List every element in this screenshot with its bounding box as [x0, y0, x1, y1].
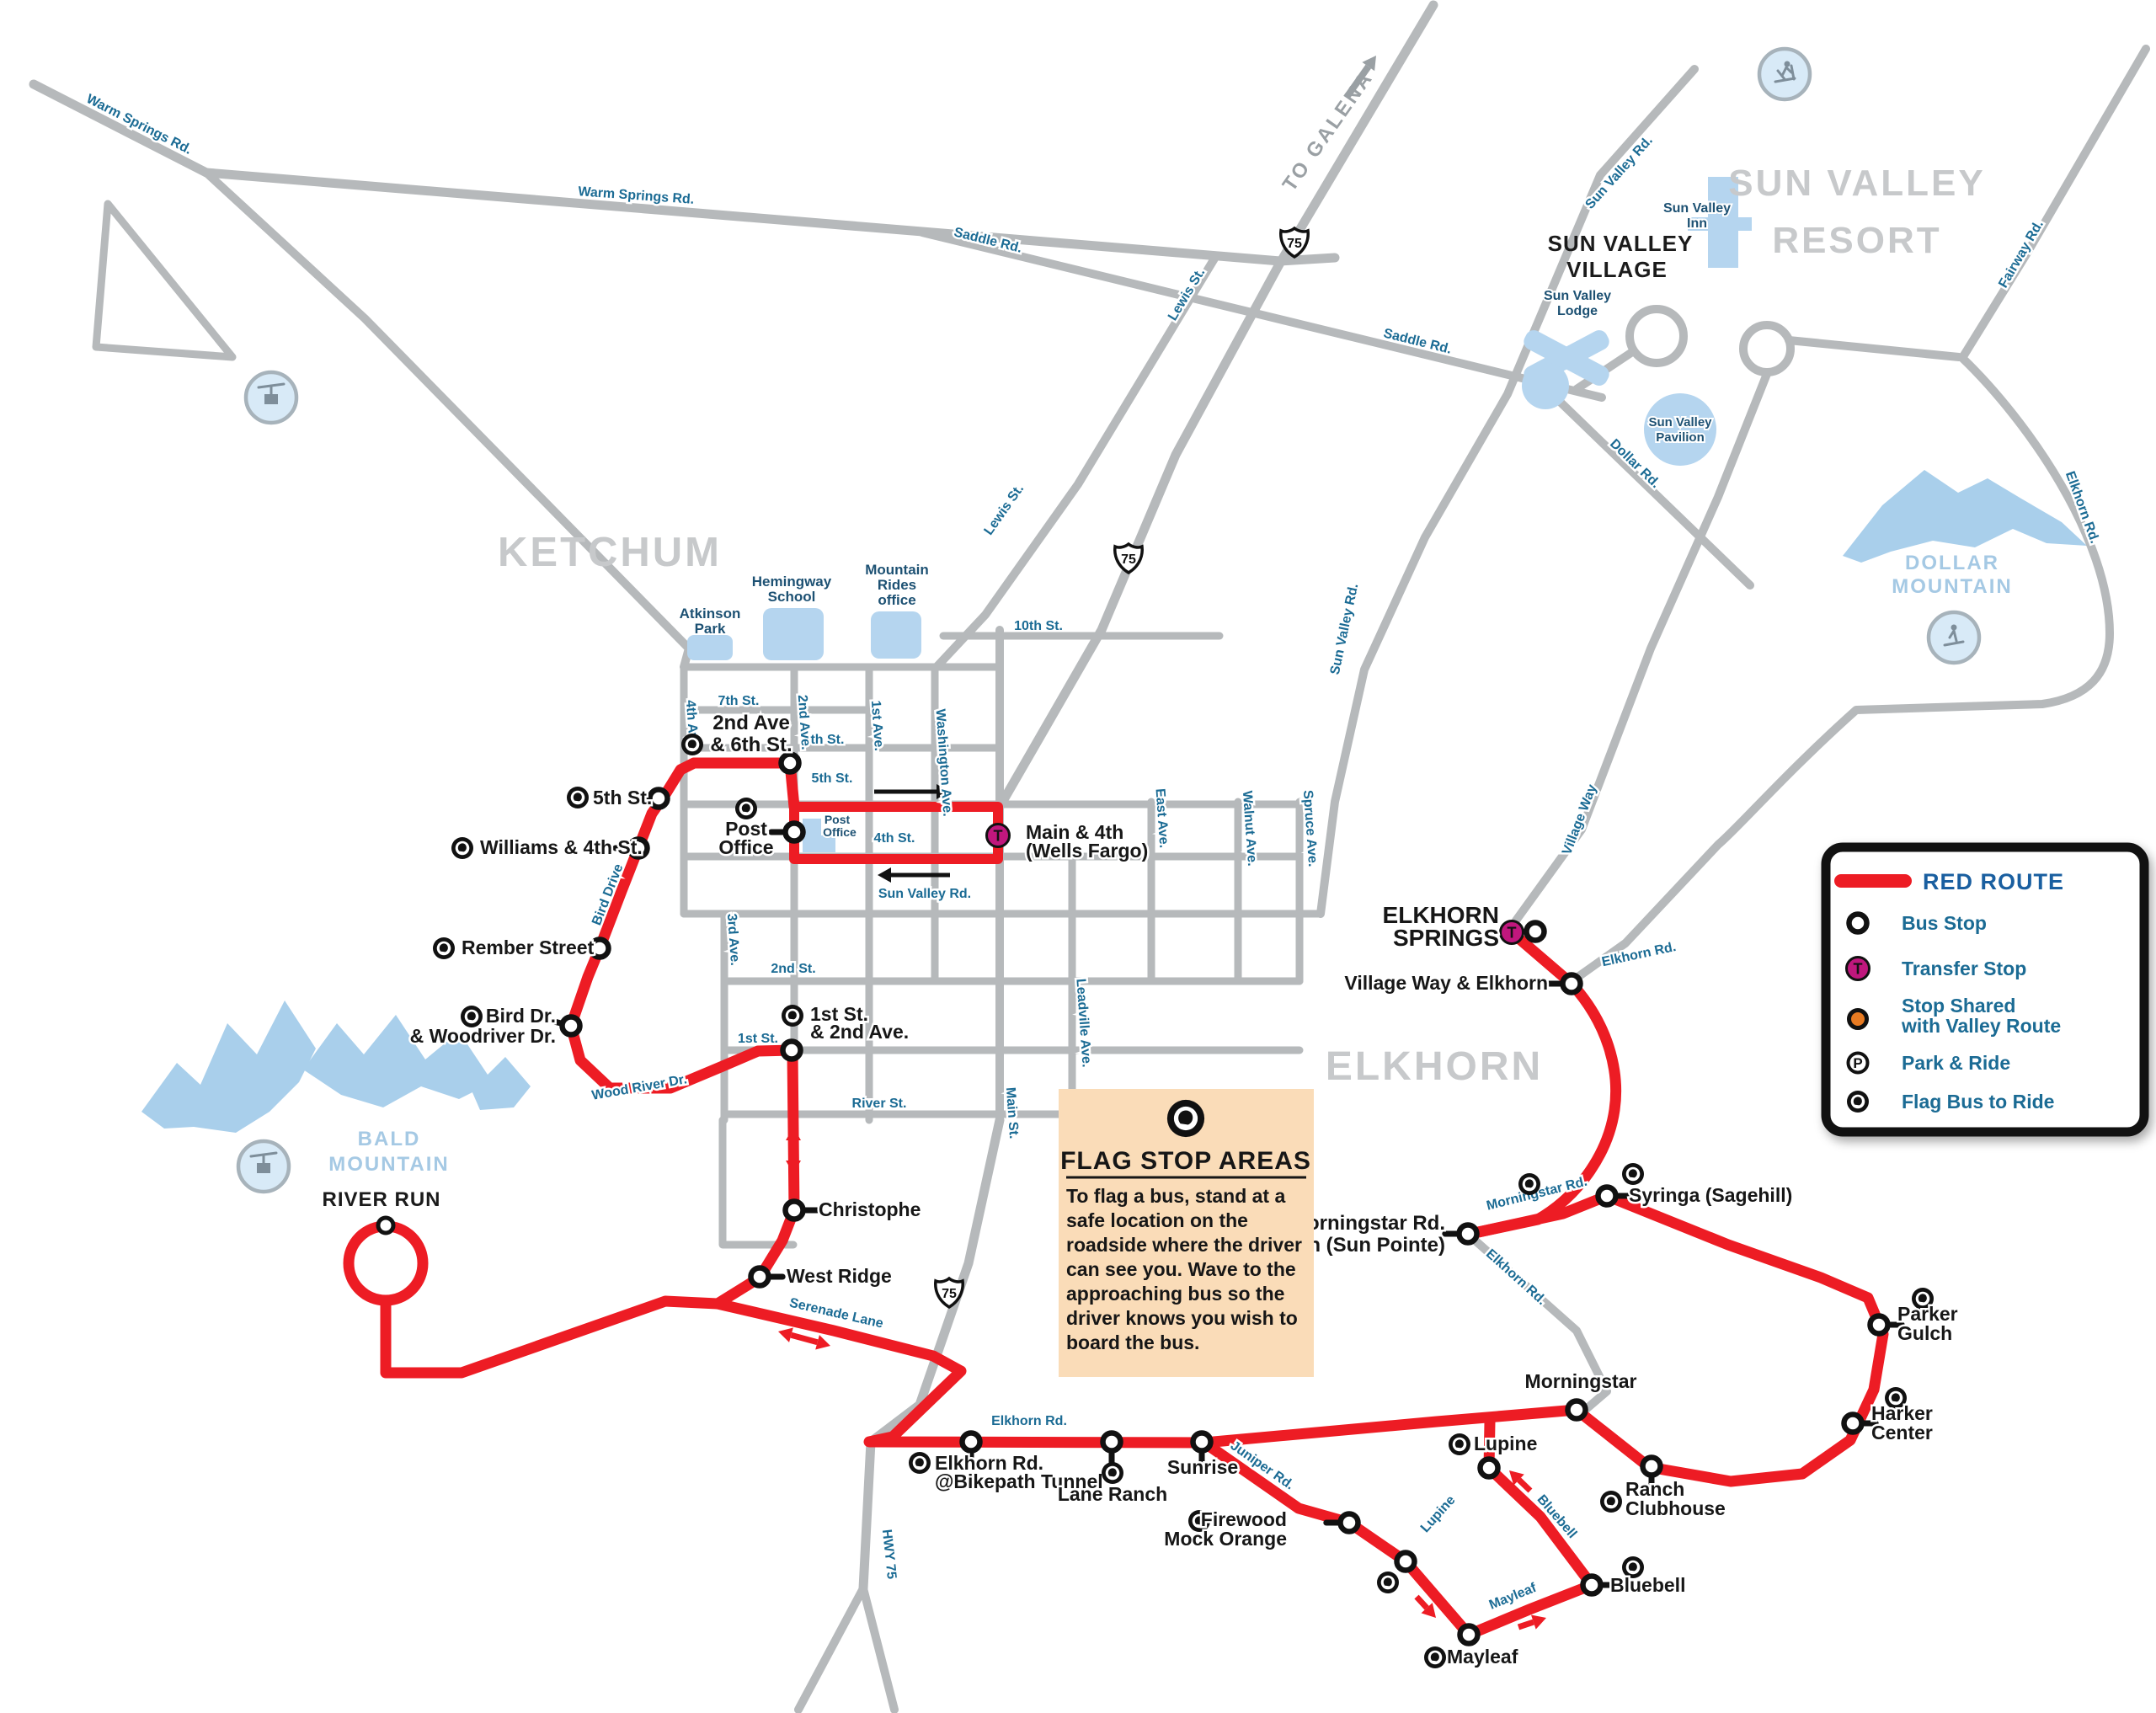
bus-stop-icon — [751, 1268, 769, 1286]
bus-stop-icon — [1568, 1401, 1586, 1419]
dollar-mountain-label: DOLLAR — [1905, 552, 1999, 574]
flag-stop-note: FLAG STOP AREAS To flag a bus, stand at … — [1059, 1089, 1314, 1377]
stop-label: 2nd Ave — [712, 712, 790, 734]
road-label: Sun Valley Rd. — [1582, 133, 1655, 211]
bus-stop-icon — [783, 1042, 801, 1059]
flag-stop-icon — [681, 734, 703, 755]
legend-shared-stop-label: Stop Shared — [1902, 995, 2015, 1017]
mountain-rides-office-label: Mountain — [865, 562, 929, 578]
shield-number: 75 — [942, 1287, 957, 1301]
road-label: 2nd St. — [771, 962, 815, 976]
legend-transfer-stop-label: Transfer Stop — [1902, 958, 2026, 979]
bus-stop-icon — [1527, 923, 1545, 941]
bus-stop-icon — [650, 790, 668, 808]
atkinson-park-building — [687, 635, 733, 660]
flag-stop-icon — [567, 787, 589, 808]
flag-stop-icon — [782, 1005, 803, 1027]
sun-valley-resort-label: SUN VALLEY — [1728, 163, 1985, 204]
arrow-shaft — [1417, 1597, 1427, 1608]
road-label: Leadville Ave. — [1073, 978, 1093, 1067]
post-office-landmark-label: Post — [825, 813, 851, 826]
bus-stop-icon — [1341, 1514, 1358, 1532]
stop-label: Mock Orange — [1164, 1528, 1287, 1550]
stop-river-run-stop — [378, 1218, 393, 1233]
transfer-stop-icon: T — [1847, 958, 1870, 980]
stop-label: Mayleaf — [1447, 1646, 1518, 1668]
road-label: HWY 75 — [879, 1529, 899, 1580]
svg-text:driver knows you wish to: driver knows you wish to — [1066, 1307, 1298, 1329]
dollar-mountain-graphic — [1843, 470, 2087, 563]
stop-label: & Woodriver Dr. — [410, 1025, 556, 1047]
bus-stop-icon — [1849, 915, 1867, 932]
stop-label: West Ridge — [787, 1265, 892, 1287]
svg-text:MOUNTAIN: MOUNTAIN — [1892, 575, 2013, 598]
road-label: Elkhorn Rd. — [1483, 1246, 1549, 1308]
park-and-ride-icon: P — [1849, 1054, 1868, 1073]
stop-label: Christophe — [819, 1198, 921, 1220]
flag-stop-icon — [1600, 1491, 1622, 1513]
bus-stop-icon — [1583, 1577, 1601, 1594]
bus-stop-icon — [1193, 1433, 1211, 1451]
sun-valley-pavilion-label: Sun Valley — [1648, 415, 1712, 430]
road-label: Elkhorn Rd. — [991, 1414, 1067, 1428]
legend-title: RED ROUTE — [1923, 869, 2064, 894]
bus-stop-icon — [1849, 915, 1867, 932]
bus-stop-icon — [1563, 975, 1581, 993]
sun-valley-village-label: SUN VALLEY — [1548, 231, 1694, 256]
road-label: East Ave. — [1153, 788, 1171, 849]
bus-stop-icon — [1598, 1187, 1616, 1205]
flag-stop-icon — [1449, 1433, 1470, 1455]
road-label: 10th St. — [1014, 619, 1063, 633]
bus-stop-icon — [563, 1017, 580, 1035]
stop-label: & 2nd Ave. — [810, 1021, 909, 1043]
flag-stop-icon — [1167, 1100, 1204, 1137]
flag-stop-icon — [1622, 1163, 1644, 1185]
road-label: Sun Valley Rd. — [878, 887, 971, 901]
bus-stop-icon — [1481, 1460, 1498, 1477]
transfer-stop-icon: T — [987, 824, 1010, 847]
bus-stop-icon — [1844, 1415, 1862, 1433]
sun-valley-lodge-label: Sun Valley — [1544, 289, 1611, 303]
bus-stop-icon — [963, 1433, 980, 1451]
road-label: Warm Springs Rd. — [84, 92, 195, 157]
river-run-loop — [349, 1226, 423, 1300]
svg-text:VILLAGE: VILLAGE — [1566, 257, 1668, 282]
hemingway-school-label: Hemingway — [752, 574, 832, 590]
flag-stop-icon — [735, 798, 757, 819]
svg-text:safe location on the: safe location on the — [1066, 1209, 1248, 1231]
stop-label: Syringa (Sagehill) — [1629, 1184, 1792, 1206]
stop-label: 5th St. — [593, 787, 652, 808]
stop-label: Office — [718, 836, 773, 858]
svg-text:approaching bus so the: approaching bus so the — [1066, 1283, 1284, 1305]
sun-valley-pavilion-building — [1644, 393, 1716, 466]
stop-label: Sunrise — [1167, 1456, 1238, 1478]
shield-number: 75 — [1287, 237, 1302, 251]
road-label: River St. — [852, 1097, 907, 1111]
transfer-letter: T — [1854, 961, 1863, 978]
stop-label: Village Way & Elkhorn — [1344, 972, 1548, 994]
road-hwy75-north — [1000, 5, 1433, 807]
arrow-head — [878, 867, 891, 883]
flag-stop-icon — [1847, 1091, 1869, 1113]
road-label: 4th St. — [874, 831, 915, 846]
svg-text:Rides: Rides — [878, 577, 916, 593]
gondola-icon — [232, 1135, 295, 1198]
svg-text:Office: Office — [823, 825, 857, 839]
stop-ranch-clubhouse: RanchClubhouse — [1600, 1458, 1726, 1520]
bus-stop-icon — [1643, 1458, 1661, 1476]
transfer-letter: T — [994, 828, 1003, 845]
us-75-shield: 75 — [1115, 544, 1142, 573]
svg-text:Lodge: Lodge — [1557, 304, 1598, 318]
svg-text:roadside where the driver: roadside where the driver — [1066, 1234, 1302, 1256]
bus-stop-icon — [1460, 1225, 1477, 1243]
road-label: Main St. — [1003, 1086, 1021, 1139]
road-warm-springs-west — [34, 84, 206, 173]
bus-stop-icon — [786, 824, 803, 841]
stop-label: SPRINGS — [1393, 925, 1499, 951]
road-warm-springs — [206, 173, 1335, 261]
road-label: 1st St. — [738, 1032, 778, 1046]
stop-label: Bluebell — [1610, 1574, 1685, 1596]
road-warm-springs-triangle — [96, 204, 232, 357]
transfer-letter: T — [1508, 925, 1517, 942]
park-letter: P — [1853, 1055, 1862, 1071]
flag-stop-icon — [1424, 1646, 1446, 1668]
transfer-stop-icon: T — [1501, 921, 1524, 944]
bus-stop-icon — [786, 1202, 803, 1219]
atkinson-park-label: Atkinson — [680, 606, 741, 622]
chairlift-icon — [240, 366, 302, 429]
stop-label: Lupine — [1474, 1433, 1537, 1454]
legend-bus-stop-label: Bus Stop — [1902, 912, 1987, 934]
skier-icon — [1753, 43, 1816, 105]
bus-stop-icon — [378, 1218, 393, 1233]
road-label: Elkhorn Rd. — [1600, 940, 1677, 969]
mountain-rides-building — [871, 611, 921, 659]
stop-label: Gulch — [1897, 1322, 1952, 1344]
flag-stop-icon — [1518, 1173, 1540, 1195]
shield-number: 75 — [1121, 552, 1136, 567]
flag-stop-icon — [1377, 1572, 1399, 1593]
road-label: Fairway Rd. — [1996, 218, 2047, 291]
arrow-head — [815, 1335, 830, 1349]
flag-note-title: FLAG STOP AREAS — [1060, 1147, 1311, 1175]
svg-text:Park: Park — [695, 621, 726, 637]
stop-fifth-st: 5th St. — [567, 787, 668, 808]
road-roundabout-2 — [1743, 325, 1790, 372]
stop-bird-woodriver: Bird Dr.& Woodriver Dr. — [410, 1005, 580, 1047]
legend: RED ROUTE Bus Stop T Transfer Stop Stop … — [1826, 847, 2144, 1132]
bus-stop-icon — [1397, 1553, 1415, 1571]
ketchum-label: KETCHUM — [498, 530, 722, 575]
svg-text:School: School — [768, 589, 816, 605]
stop-label: Rember Street — [462, 937, 595, 958]
stop-williams-4th-st: Williams & 4th St. — [451, 836, 648, 859]
stop-mayleaf: Mayleaf — [1424, 1626, 1518, 1669]
flag-stop-icon — [1102, 1462, 1123, 1484]
legend-park-ride-label: Park & Ride — [1902, 1052, 2010, 1074]
stop-west-ridge: West Ridge — [751, 1265, 892, 1287]
transfer-stop-icon: T — [1847, 958, 1870, 980]
hemingway-school-building — [763, 608, 824, 660]
arrow-shaft — [1519, 1480, 1530, 1491]
stop-label: Bird Dr. — [486, 1005, 556, 1027]
road-label: 7th St. — [718, 694, 760, 708]
arrow-shaft — [1518, 1622, 1534, 1627]
bus-stop-icon — [1460, 1626, 1478, 1644]
stop-label: Center — [1871, 1422, 1933, 1444]
stop-label: Clubhouse — [1625, 1497, 1726, 1519]
park-and-ride-icon: P — [1849, 1054, 1868, 1073]
road-label: 5th St. — [812, 771, 853, 786]
flag-stop-icon — [433, 937, 455, 959]
flag-stop-icon — [451, 837, 473, 859]
stop-label: (Wells Fargo) — [1026, 840, 1148, 862]
stop-label: Morningstar — [1525, 1370, 1637, 1392]
svg-text:To flag a bus, stand at a: To flag a bus, stand at a — [1066, 1185, 1285, 1207]
stop-bluebell: Bluebell — [1583, 1556, 1686, 1596]
stop-village-way-elkhorn: Village Way & Elkhorn — [1344, 972, 1580, 994]
bus-stop-icon — [782, 755, 799, 772]
svg-text:MOUNTAIN: MOUNTAIN — [328, 1153, 450, 1176]
stop-rember-street: Rember Street — [433, 937, 609, 959]
road-roundabout-1 — [1630, 309, 1684, 363]
stop-christophe: Christophe — [786, 1198, 921, 1220]
flag-stop-icon — [909, 1452, 931, 1474]
sun-valley-inn-label: Sun Valley — [1663, 201, 1731, 216]
svg-text:RESORT: RESORT — [1772, 220, 1941, 261]
snowboarder-icon — [1923, 606, 1985, 669]
road-sun-valley-rd-ne — [1321, 69, 1694, 914]
elkhorn-label: ELKHORN — [1326, 1044, 1543, 1089]
bus-stop-icon — [1103, 1433, 1121, 1451]
flag-stop-icon — [1167, 1100, 1204, 1137]
svg-text:with Valley Route: with Valley Route — [1901, 1015, 2061, 1037]
flag-stop-icon — [1847, 1091, 1869, 1113]
stop-label: Williams & 4th St. — [480, 836, 643, 858]
bus-stop-icon — [1870, 1316, 1888, 1334]
bald-mountain-label: BALD — [358, 1128, 421, 1150]
road-label: Lewis St. — [981, 482, 1027, 538]
svg-text:board the bus.: board the bus. — [1066, 1331, 1199, 1353]
legend-flag-bus-label: Flag Bus to Ride — [1902, 1091, 2054, 1113]
road-label: Sun Valley Rd. — [1328, 582, 1362, 675]
shared-stop-icon — [1849, 1011, 1867, 1028]
sun-valley-red-route-map: 757575 Warm Springs Rd.Warm Springs Rd.S… — [0, 0, 2156, 1713]
arrow-shaft — [791, 1335, 817, 1342]
arrow-head — [778, 1328, 793, 1342]
stop-label: & 6th St. — [710, 734, 792, 756]
svg-text:Pavilion: Pavilion — [1656, 430, 1705, 445]
road-label: Village Way — [1560, 782, 1599, 856]
river-run-label: RIVER RUN — [322, 1188, 440, 1211]
svg-text:office: office — [878, 592, 915, 608]
shared-stop-icon — [1849, 1011, 1867, 1028]
svg-text:Inn: Inn — [1687, 216, 1707, 231]
road-hwy75-fork — [798, 1588, 894, 1710]
svg-text:can see you. Wave to the: can see you. Wave to the — [1066, 1258, 1296, 1280]
stop-label: Lane Ranch — [1058, 1483, 1167, 1505]
road-label: Lupine — [1418, 1493, 1459, 1535]
